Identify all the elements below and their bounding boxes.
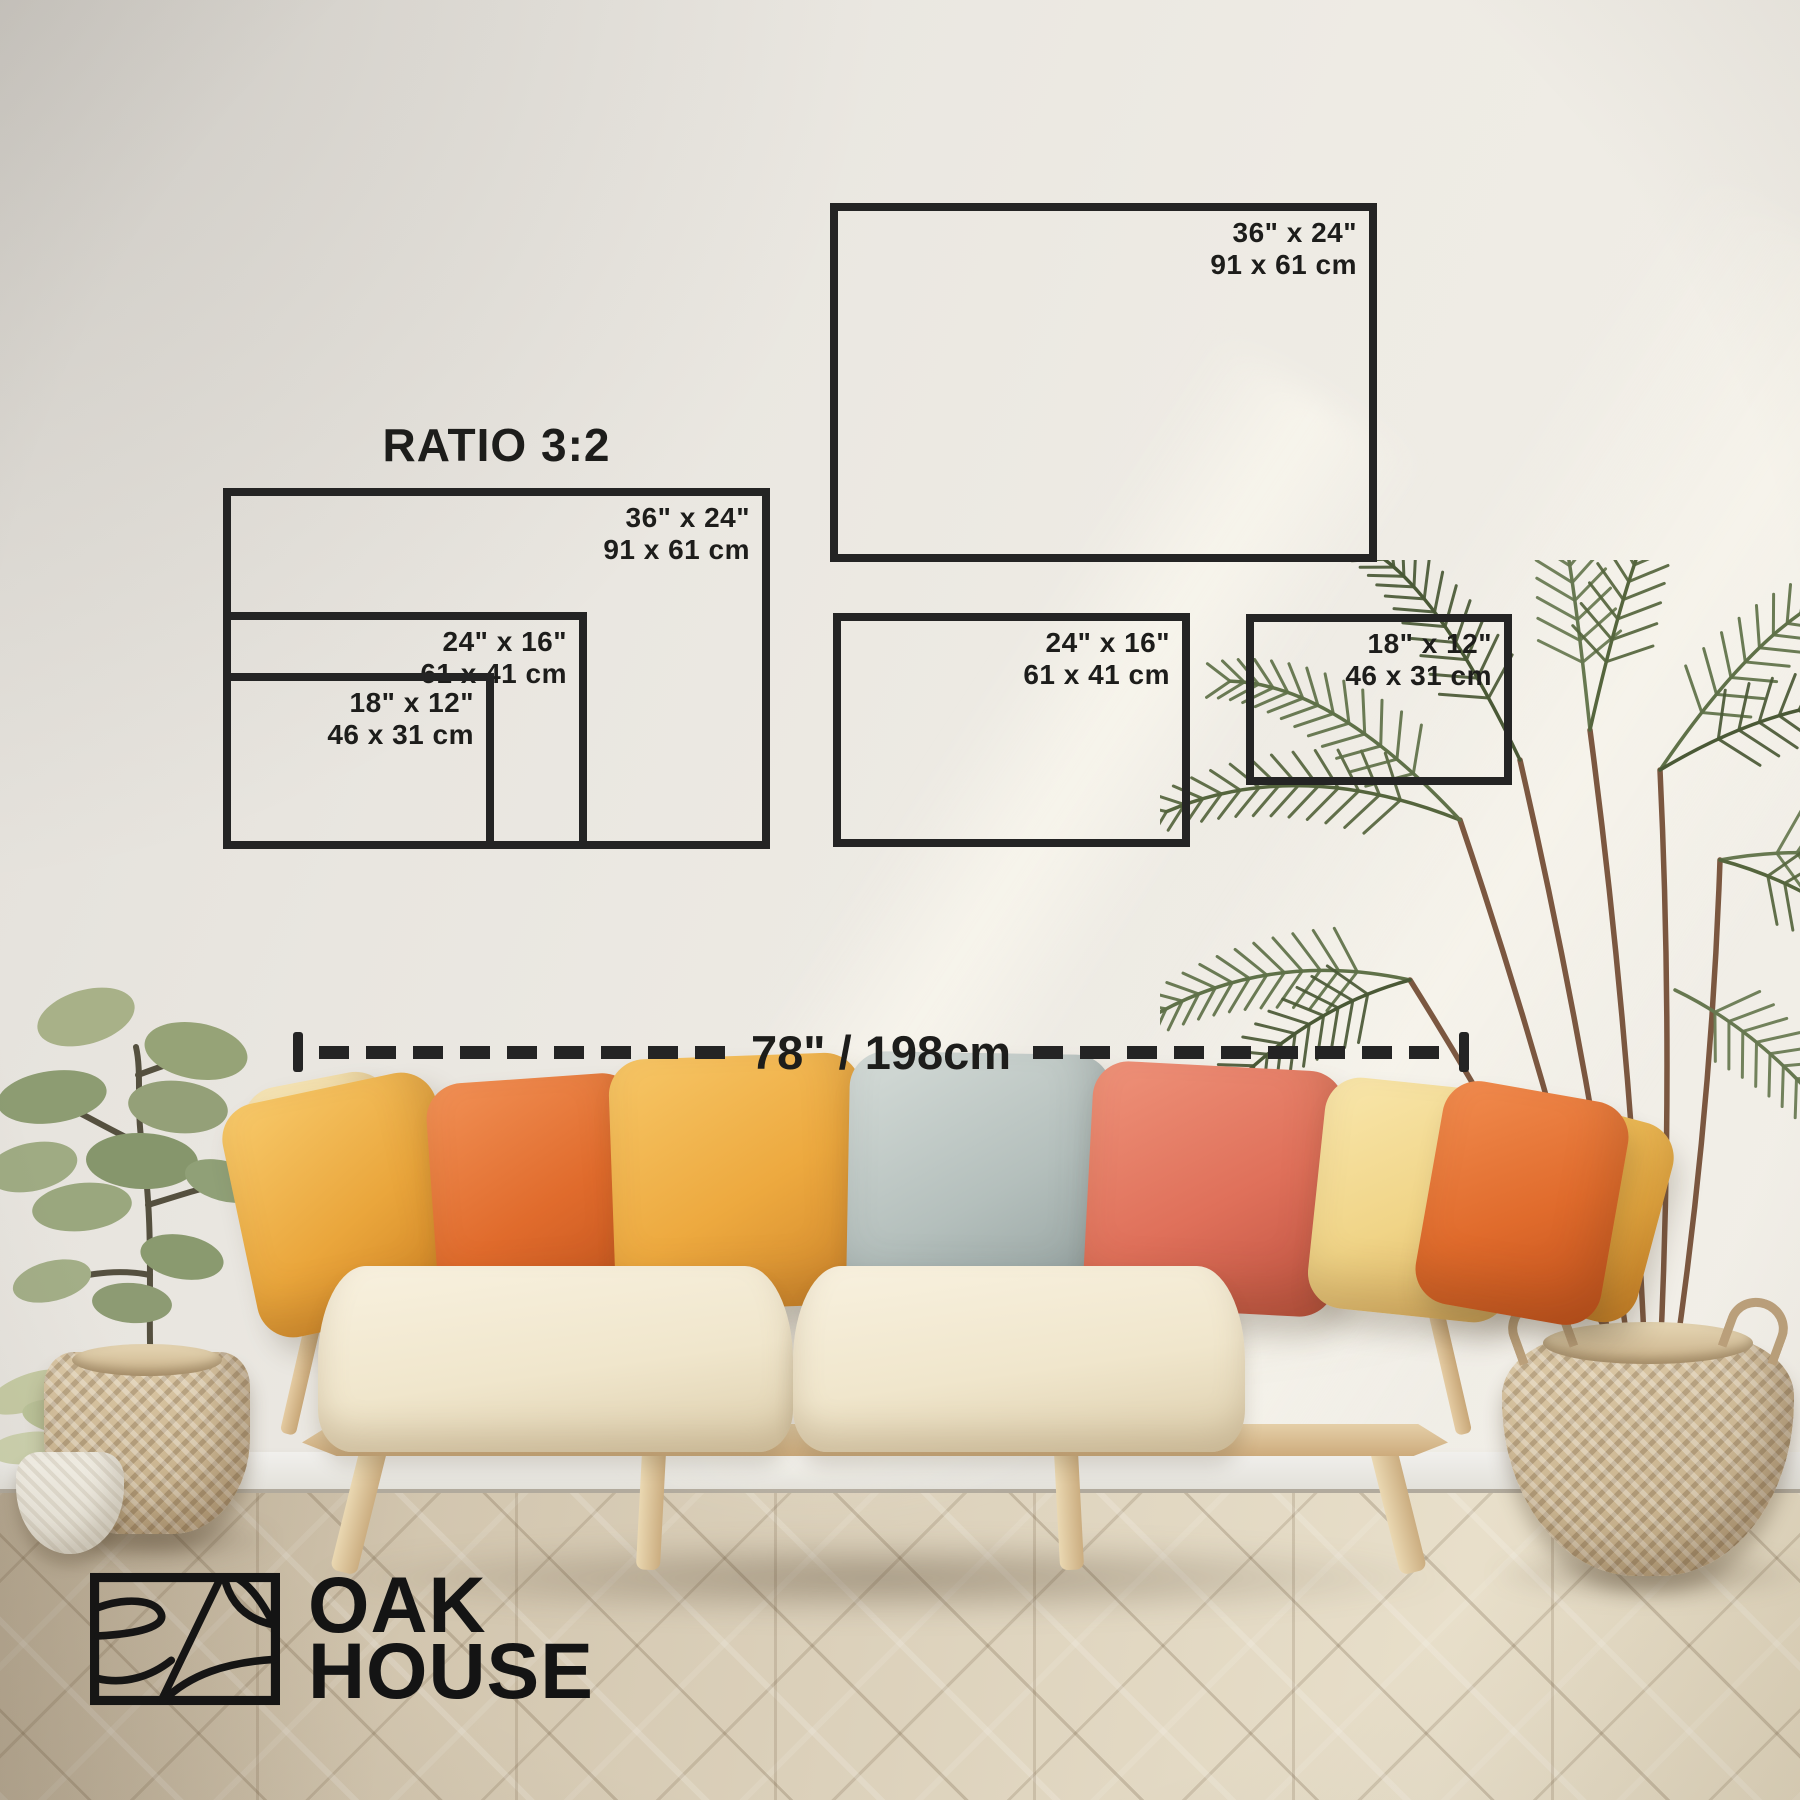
- basket-rim: [72, 1344, 222, 1376]
- pillow-orange: [1410, 1075, 1634, 1330]
- oak-house-logo-icon: [90, 1572, 280, 1706]
- brand-logo: OAK HOUSE: [90, 1572, 594, 1706]
- brand-line-2: HOUSE: [308, 1638, 594, 1704]
- wall-width-measurement: 78" / 198cm: [293, 1028, 1469, 1076]
- size-frame-36x24-wall: 36" x 24"91 x 61 cm: [830, 203, 1377, 562]
- seat-cushion-right: [793, 1266, 1245, 1452]
- seat-cushion-left: [318, 1266, 793, 1452]
- size-frame-18x12-ratio-group: 18" x 12"46 x 31 cm: [223, 673, 494, 849]
- wall-width-label: 78" / 198cm: [745, 1025, 1017, 1080]
- size-frame-24x16-wall: 24" x 16"61 x 41 cm: [833, 613, 1190, 847]
- measure-tick-right: [1459, 1032, 1469, 1072]
- brand-name: OAK HOUSE: [308, 1572, 594, 1705]
- room-mockup-scene: RATIO 3:2 36" x 24"91 x 61 cm 24" x 16"6…: [0, 0, 1800, 1800]
- size-label: 24" x 16"61 x 41 cm: [1023, 627, 1170, 691]
- measure-tick-left: [293, 1032, 303, 1072]
- measure-dashed-line: [1033, 1046, 1443, 1059]
- size-label: 18" x 12"46 x 31 cm: [327, 687, 474, 751]
- ratio-title: RATIO 3:2: [223, 418, 770, 472]
- size-frame-18x12-wall: 18" x 12"46 x 31 cm: [1246, 614, 1512, 785]
- size-label: 36" x 24"91 x 61 cm: [1210, 217, 1357, 281]
- size-label: 36" x 24"91 x 61 cm: [603, 502, 750, 566]
- size-label: 18" x 12"46 x 31 cm: [1345, 628, 1492, 692]
- measure-dashed-line: [319, 1046, 729, 1059]
